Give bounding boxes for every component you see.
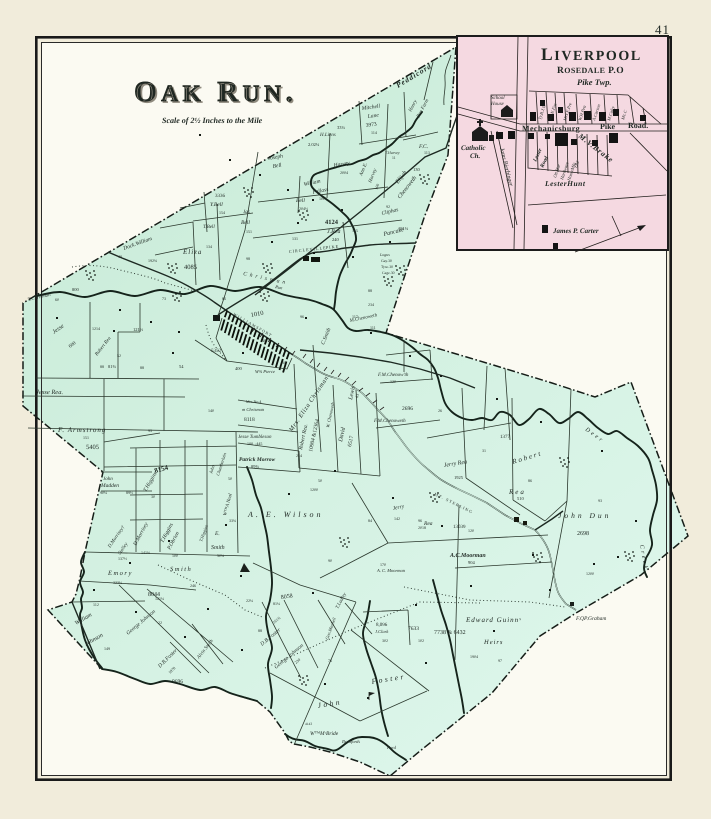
svg-text:Cage.30: Cage.30 <box>382 271 395 275</box>
svg-text:9696: 9696 <box>172 679 183 685</box>
svg-text:F.QP.Graham: F.QP.Graham <box>575 616 606 622</box>
svg-text:22: 22 <box>158 620 162 625</box>
svg-text:76: 76 <box>328 658 332 663</box>
svg-text:School: School <box>491 95 505 101</box>
svg-text:ROSEDALE P.O: ROSEDALE P.O <box>557 66 624 76</box>
svg-text:246: 246 <box>190 583 196 588</box>
svg-text:2.02¼: 2.02¼ <box>308 142 320 147</box>
svg-text:8118: 8118 <box>244 417 255 423</box>
svg-text:2698: 2698 <box>577 531 589 537</box>
svg-text:93: 93 <box>598 498 602 503</box>
svg-text:Smith: Smith <box>170 566 192 573</box>
svg-text:F.M.Chenow'th: F.M.Chenow'th <box>377 372 409 378</box>
svg-text:400: 400 <box>235 366 243 371</box>
svg-text:F. Armstrong: F. Armstrong <box>57 426 106 434</box>
svg-text:5352: 5352 <box>211 348 222 354</box>
svg-text:T.Harvey: T.Harvey <box>385 150 400 155</box>
svg-text:30: 30 <box>282 360 286 365</box>
svg-text:Catholic: Catholic <box>461 144 486 152</box>
svg-text:52: 52 <box>117 353 121 358</box>
svg-text:2004: 2004 <box>340 170 348 175</box>
svg-text:114: 114 <box>371 130 377 135</box>
svg-text:120: 120 <box>390 379 396 384</box>
svg-text:88: 88 <box>368 288 372 293</box>
svg-text:Pike Twp.: Pike Twp. <box>577 77 612 87</box>
svg-text:Heirs: Heirs <box>483 639 503 646</box>
svg-text:137½: 137½ <box>118 556 127 561</box>
svg-text:A. E. Wilson: A. E. Wilson <box>247 510 324 519</box>
svg-text:W¾ Pierce: W¾ Pierce <box>255 369 275 374</box>
svg-text:86: 86 <box>222 296 226 301</box>
svg-text:234: 234 <box>368 302 374 307</box>
svg-text:93: 93 <box>148 428 152 433</box>
svg-text:House: House <box>490 101 505 107</box>
svg-text:8044: 8044 <box>148 592 160 598</box>
svg-text:5405: 5405 <box>86 444 99 451</box>
svg-text:H.Liens: H.Liens <box>319 132 336 138</box>
svg-text:88: 88 <box>258 628 262 633</box>
svg-text:E.: E. <box>214 531 220 537</box>
svg-text:Eliza: Eliza <box>182 248 202 256</box>
svg-text:113: 113 <box>424 150 430 155</box>
svg-text:Y.Bell: Y.Bell <box>210 202 223 208</box>
svg-text:1904: 1904 <box>470 654 478 659</box>
svg-text:13039: 13039 <box>453 524 466 530</box>
svg-text:1200: 1200 <box>586 571 594 576</box>
svg-text:T.Bell: T.Bell <box>203 224 215 230</box>
svg-text:Jas: Jas <box>243 209 250 215</box>
svg-text:81¾: 81¾ <box>108 364 117 369</box>
svg-text:121½: 121½ <box>133 327 144 332</box>
svg-text:92: 92 <box>386 204 390 209</box>
svg-text:Madden: Madden <box>100 483 119 489</box>
svg-text:48: 48 <box>262 338 266 343</box>
svg-text:50¾: 50¾ <box>217 553 224 558</box>
svg-text:2018: 2018 <box>418 525 426 530</box>
svg-text:240: 240 <box>332 237 340 242</box>
svg-text:33¼: 33¼ <box>337 125 346 130</box>
svg-text:86: 86 <box>528 478 532 483</box>
svg-text:96: 96 <box>418 518 422 523</box>
svg-text:90: 90 <box>328 558 332 563</box>
svg-text:41: 41 <box>655 22 670 37</box>
svg-text:1214: 1214 <box>92 326 100 331</box>
svg-text:m Chrisman: m Chrisman <box>242 407 265 412</box>
svg-text:F.M.Chenoweth: F.M.Chenoweth <box>373 418 406 424</box>
svg-text:7738 & 6432: 7738 & 6432 <box>434 630 466 636</box>
svg-text:Scale of 2½ Inches to the Mile: Scale of 2½ Inches to the Mile <box>162 116 263 125</box>
svg-text:4124: 4124 <box>325 219 339 226</box>
svg-text:89¾: 89¾ <box>251 464 260 469</box>
svg-text:11: 11 <box>392 156 396 160</box>
svg-text:Edward Guinnˢ: Edward Guinnˢ <box>465 616 522 624</box>
svg-text:192¾: 192¾ <box>148 258 157 263</box>
svg-text:81¼: 81¼ <box>273 601 280 606</box>
svg-text:31: 31 <box>482 448 486 453</box>
svg-text:154: 154 <box>219 210 225 215</box>
svg-text:4085: 4085 <box>184 264 197 271</box>
svg-text:510: 510 <box>517 496 525 501</box>
svg-text:A. C. Moorman: A. C. Moorman <box>376 568 406 573</box>
svg-text:131: 131 <box>292 236 298 241</box>
svg-text:Pike: Pike <box>600 122 616 131</box>
svg-text:100 -445: 100 -445 <box>247 441 262 446</box>
svg-text:4143: 4143 <box>305 722 312 726</box>
svg-text:323¼: 323¼ <box>113 580 122 585</box>
svg-text:73: 73 <box>162 296 166 301</box>
svg-text:Tyso.30: Tyso.30 <box>381 265 393 269</box>
svg-text:134: 134 <box>206 244 212 249</box>
svg-text:8,096: 8,096 <box>376 622 388 628</box>
svg-text:John Dun: John Dun <box>558 511 611 520</box>
svg-text:Gay.30: Gay.30 <box>381 259 392 263</box>
svg-text:88: 88 <box>140 365 144 370</box>
svg-text:151: 151 <box>83 435 89 440</box>
svg-text:J.Clark: J.Clark <box>375 629 389 634</box>
svg-text:33¾: 33¾ <box>229 518 236 523</box>
svg-text:117: 117 <box>352 314 358 319</box>
svg-text:102: 102 <box>418 638 424 643</box>
svg-text:3336: 3336 <box>215 193 226 199</box>
svg-text:89½: 89½ <box>126 490 133 495</box>
svg-text:111: 111 <box>370 325 376 330</box>
svg-text:98: 98 <box>246 256 250 261</box>
svg-text:7633: 7633 <box>408 626 419 632</box>
svg-text:James P. Carter: James P. Carter <box>552 227 599 235</box>
svg-text:Jesse Rea.: Jesse Rea. <box>36 389 63 396</box>
svg-text:Ch.: Ch. <box>470 152 481 160</box>
svg-text:A.C.Moorman: A.C.Moorman <box>449 553 486 559</box>
svg-text:96: 96 <box>300 314 304 319</box>
svg-text:60: 60 <box>55 297 59 302</box>
svg-text:Smith: Smith <box>211 544 225 551</box>
svg-text:Logus: Logus <box>379 252 390 257</box>
svg-text:170: 170 <box>380 562 386 567</box>
svg-text:800: 800 <box>72 287 80 292</box>
svg-text:Mrs.No.4: Mrs.No.4 <box>246 399 261 404</box>
svg-text:50: 50 <box>228 476 232 481</box>
svg-text:115: 115 <box>352 228 358 233</box>
svg-text:John: John <box>103 476 113 482</box>
svg-text:Road.: Road. <box>628 121 648 130</box>
svg-text:1377: 1377 <box>500 434 511 440</box>
svg-text:W™MᶜBride: W™MᶜBride <box>310 731 339 737</box>
svg-text:Bell: Bell <box>241 220 250 226</box>
svg-text:Mechanicsburg: Mechanicsburg <box>522 124 580 133</box>
svg-text:149: 149 <box>104 646 110 651</box>
svg-text:54: 54 <box>179 364 184 369</box>
svg-text:84: 84 <box>368 518 372 523</box>
svg-text:J.Rea: J.Rea <box>327 229 341 235</box>
svg-text:214: 214 <box>296 453 302 458</box>
svg-text:1925: 1925 <box>454 475 464 480</box>
svg-text:22¼: 22¼ <box>246 598 253 603</box>
svg-text:112: 112 <box>93 602 99 607</box>
svg-text:30: 30 <box>151 494 155 499</box>
svg-text:90¼: 90¼ <box>100 490 107 495</box>
svg-text:151: 151 <box>246 229 252 234</box>
svg-text:Bradfords: Bradfords <box>342 739 360 744</box>
svg-text:Bell: Bell <box>296 198 305 204</box>
svg-text:OAK RUN.: OAK RUN. <box>134 76 297 108</box>
svg-text:Patrick Morrow: Patrick Morrow <box>239 457 276 463</box>
svg-text:120: 120 <box>468 528 474 533</box>
svg-text:Emory: Emory <box>107 570 133 577</box>
svg-text:50: 50 <box>318 478 322 483</box>
svg-text:302: 302 <box>382 638 388 643</box>
svg-text:130: 130 <box>413 167 421 172</box>
svg-text:100: 100 <box>172 553 178 558</box>
svg-text:100: 100 <box>319 196 325 201</box>
svg-text:142: 142 <box>394 516 400 521</box>
svg-text:Jesse Tumbleson: Jesse Tumbleson <box>238 434 272 440</box>
svg-text:904: 904 <box>468 560 476 565</box>
svg-text:97: 97 <box>498 658 502 663</box>
svg-text:Rea: Rea <box>508 488 526 496</box>
svg-text:88: 88 <box>100 364 104 369</box>
svg-text:40: 40 <box>118 254 122 259</box>
svg-text:LesterHunt: LesterHunt <box>544 179 586 188</box>
svg-text:Ford: Ford <box>386 745 397 750</box>
svg-text:26: 26 <box>438 408 442 413</box>
svg-text:2696: 2696 <box>402 406 413 412</box>
svg-text:1200: 1200 <box>310 487 318 492</box>
svg-text:141¾: 141¾ <box>141 550 150 555</box>
svg-text:140: 140 <box>208 408 214 413</box>
